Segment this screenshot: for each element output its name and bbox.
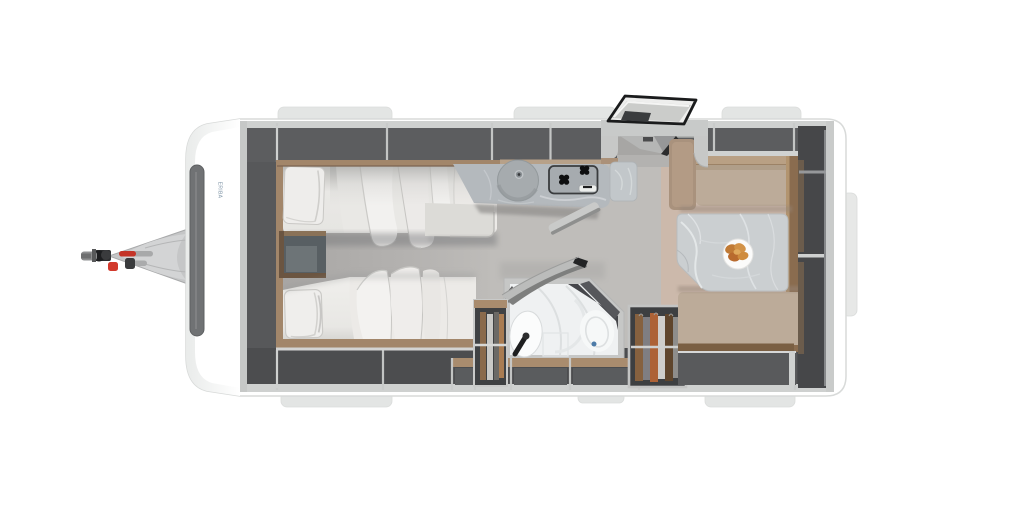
svg-text:ERIBA: ERIBA <box>217 182 223 199</box>
